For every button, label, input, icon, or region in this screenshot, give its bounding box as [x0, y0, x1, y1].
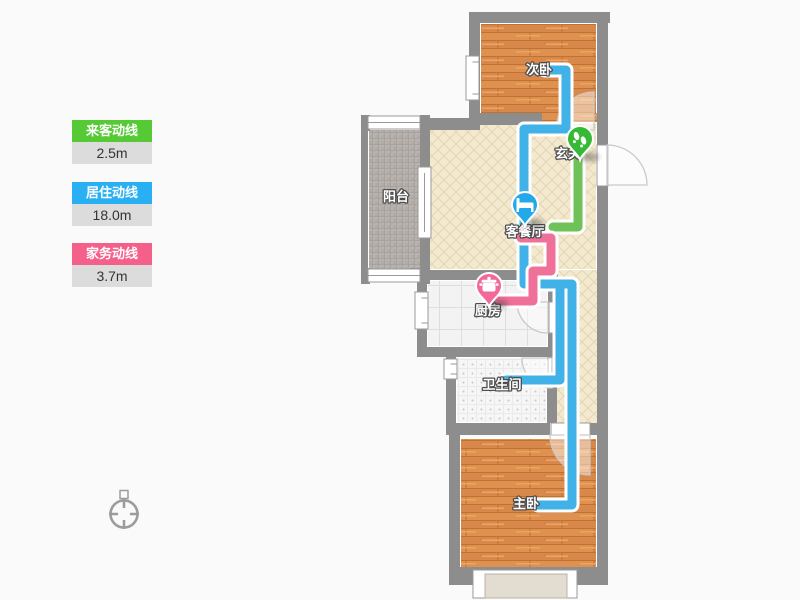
- master-bedroom-window-sill: [485, 574, 567, 598]
- legend-living-label[interactable]: 居住动线: [72, 182, 152, 204]
- legend-visitor-label[interactable]: 来客动线: [72, 120, 152, 142]
- floorplan-viewer: 次卧 玄关 客餐厅 阳台 厨房 卫生间 主卧: [0, 0, 800, 600]
- room-label-secondary-bedroom: 次卧: [526, 62, 552, 77]
- room-label-master-bedroom: 主卧: [513, 496, 539, 511]
- legend-item-living-route[interactable]: 居住动线 18.0m: [72, 182, 152, 226]
- bathroom-window: [444, 359, 457, 379]
- legend-visitor-value: 2.5m: [72, 142, 152, 164]
- secondary-bedroom-window: [466, 56, 479, 100]
- entrance-door-arc: [607, 145, 647, 185]
- legend-item-visitor-route[interactable]: 来客动线 2.5m: [72, 120, 152, 164]
- compass-ticks: [109, 499, 139, 529]
- compass-north-box: [120, 491, 128, 499]
- legend-housework-value: 3.7m: [72, 265, 152, 287]
- legend-item-housework-route[interactable]: 家务动线 3.7m: [72, 243, 152, 287]
- floorplan-canvas: 次卧 玄关 客餐厅 阳台 厨房 卫生间 主卧: [0, 0, 800, 600]
- room-label-balcony: 阳台: [383, 189, 409, 204]
- legend-housework-label[interactable]: 家务动线: [72, 243, 152, 265]
- compass: [109, 491, 139, 530]
- room-label-bathroom: 卫生间: [482, 377, 521, 392]
- legend-living-value: 18.0m: [72, 204, 152, 226]
